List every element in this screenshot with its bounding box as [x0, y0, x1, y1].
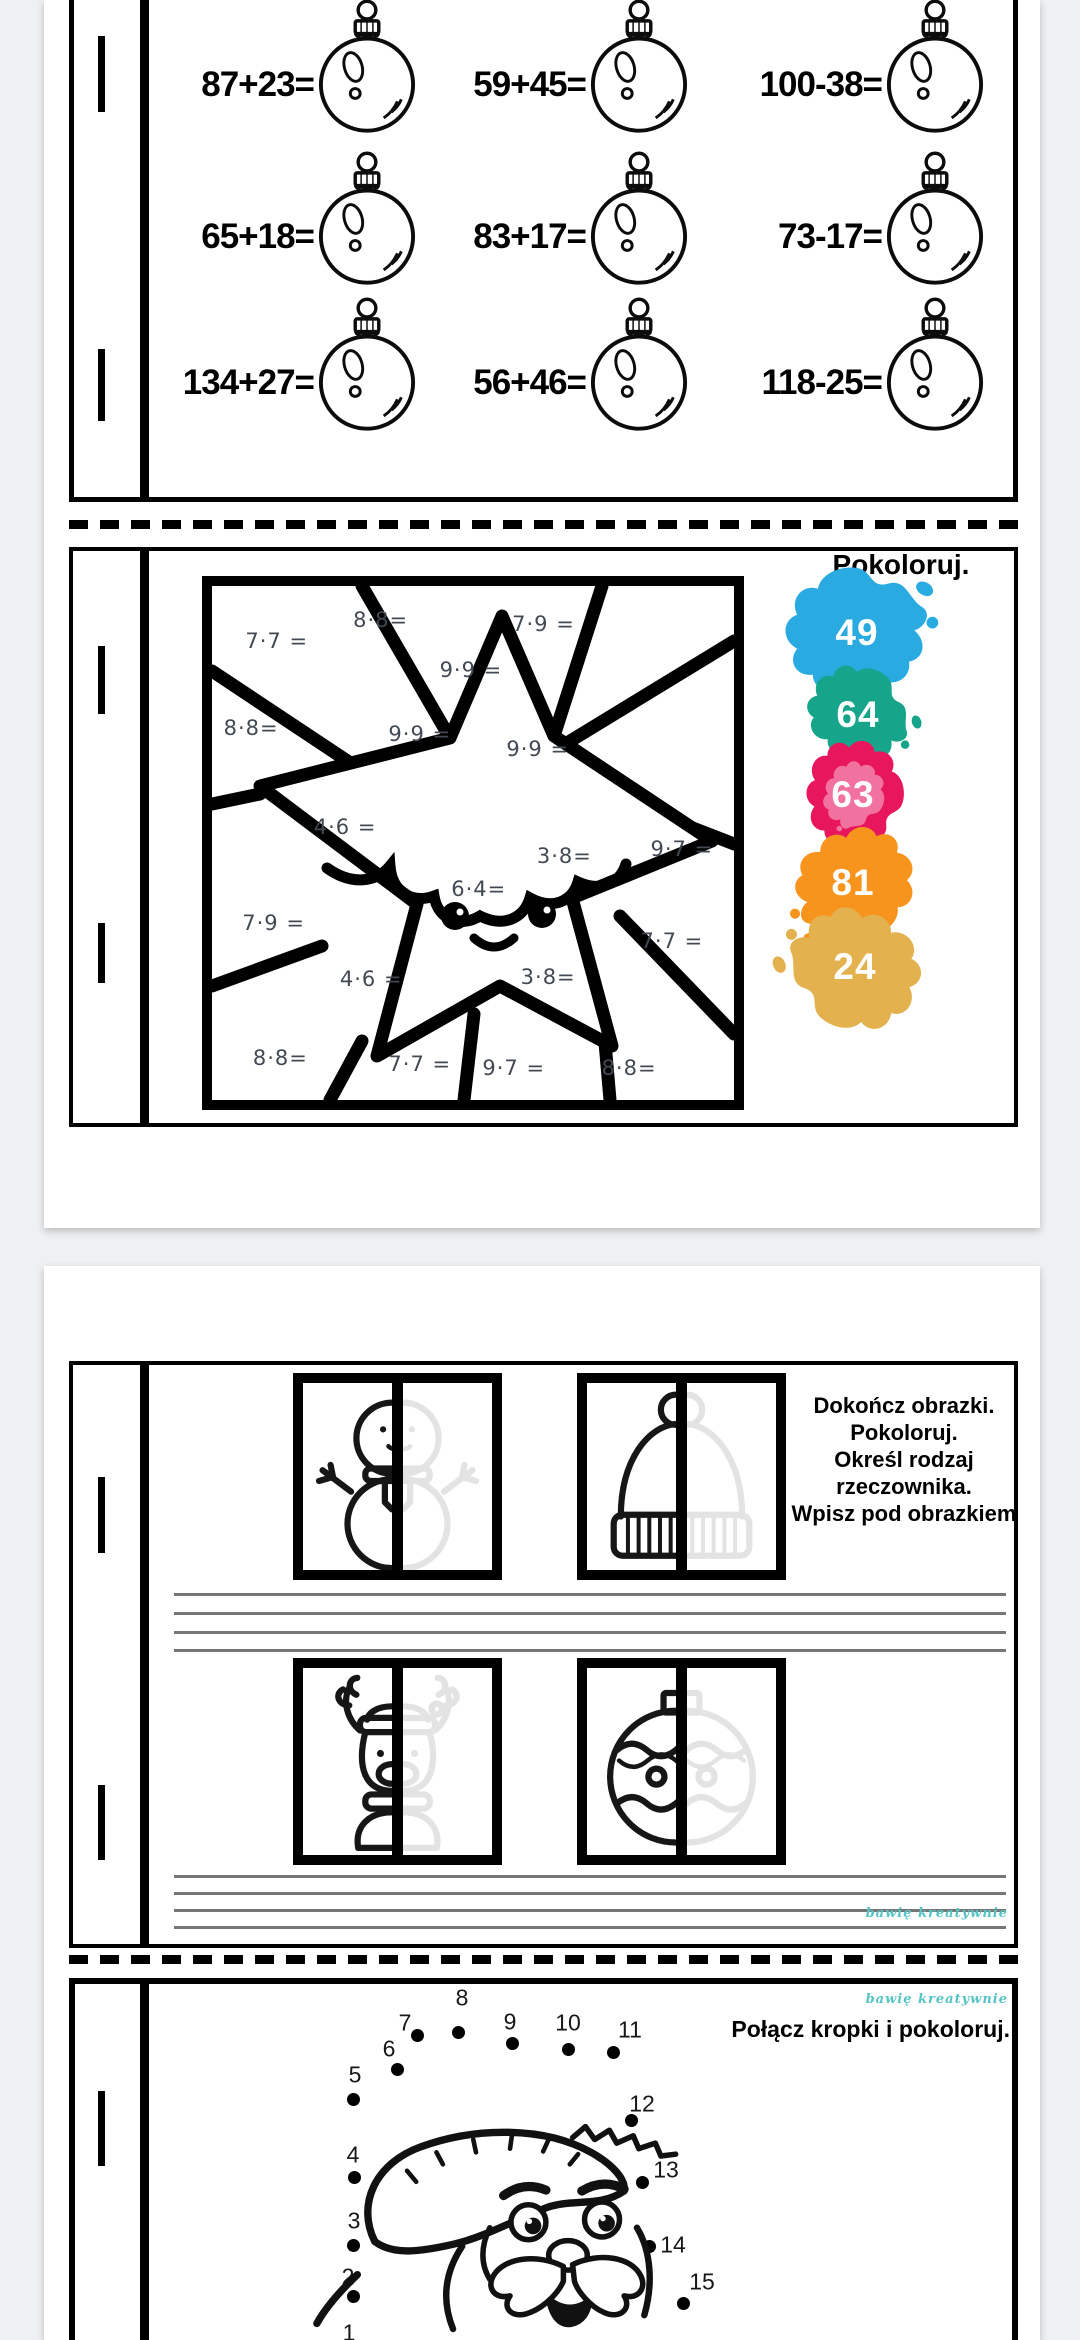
dot-number: 7 — [399, 2010, 412, 2037]
cut-mark — [98, 646, 105, 714]
ornament-ball-icon — [687, 1668, 776, 1855]
math-problem-text: 118-25= — [706, 363, 882, 403]
math-problem-text: 65+18= — [162, 217, 314, 257]
writing-line — [174, 1875, 1006, 1878]
christmas-bauble-icon — [316, 148, 418, 286]
multiplication-problem: 3·8= — [537, 844, 592, 868]
christmas-bauble-icon — [588, 148, 690, 286]
math-problem: 73-17= — [706, 148, 986, 286]
picture-half-trace — [687, 1383, 776, 1570]
math-problem-text: 56+46= — [434, 363, 586, 403]
author-watermark: bawię kreatywnie — [824, 1992, 1008, 2007]
dots-title: Połącz kropki i pokoloruj. — [704, 2016, 1010, 2043]
reindeer-icon — [303, 1668, 392, 1855]
dot-number: 6 — [383, 2036, 396, 2063]
half-picture-box — [577, 1373, 786, 1580]
dot-marker — [452, 2026, 465, 2039]
cut-mark — [98, 923, 105, 983]
cut-mark — [98, 1477, 105, 1553]
math-problem: 65+18= — [162, 148, 418, 286]
writing-line — [174, 1631, 1006, 1634]
picture-divider — [392, 1383, 403, 1570]
document-viewer: { "viewer": { "background_color": "#eef0… — [0, 0, 1080, 2340]
picture-half-drawn — [303, 1383, 392, 1570]
writing-line — [174, 1649, 1006, 1652]
document-page-2: Dokończ obrazki.Pokoloruj.Określ rodzajr… — [44, 1266, 1040, 2340]
multiplication-problem: 9·9 = — [506, 737, 569, 761]
splat-legend: 49 64 63 81 — [794, 590, 1018, 1120]
winter-hat-icon — [687, 1383, 776, 1570]
multiplication-problem: 7·9 = — [512, 612, 575, 636]
dot-number: 11 — [618, 2017, 642, 2044]
santa-claus-drawing — [279, 2099, 719, 2340]
multiplication-problem: 9·9 = — [440, 658, 503, 682]
winter-hat-icon — [587, 1383, 676, 1570]
math-problem-text: 59+45= — [434, 65, 586, 105]
multiplication-problem: 8·8= — [602, 1056, 657, 1080]
christmas-bauble-icon — [316, 294, 418, 432]
picture-half-drawn — [303, 1668, 392, 1855]
paint-splat: 24 — [780, 902, 930, 1032]
picture-divider — [392, 1668, 403, 1855]
multiplication-problem: 9·9 = — [388, 722, 451, 746]
multiplication-problem: 4·6 = — [340, 967, 403, 991]
splat-number: 24 — [780, 902, 930, 1032]
math-problem: 118-25= — [706, 294, 986, 432]
writing-line — [174, 1926, 1006, 1929]
multiplication-problem: 4·6 = — [314, 815, 377, 839]
cut-mark — [98, 2091, 105, 2166]
instruction-line: rzeczownika. — [787, 1473, 1021, 1500]
picture-half-trace — [403, 1383, 492, 1570]
writing-line — [174, 1892, 1006, 1895]
instruction-line: Wpisz pod obrazkiem — [787, 1500, 1021, 1527]
multiplication-problem: 8·8= — [353, 608, 408, 632]
dot-number: 5 — [349, 2062, 362, 2089]
christmas-bauble-icon — [588, 294, 690, 432]
instruction-line: Dokończ obrazki. — [787, 1392, 1021, 1419]
instruction-line: Pokoloruj. — [787, 1419, 1021, 1446]
reindeer-icon — [403, 1668, 492, 1855]
ornament-ball-icon — [587, 1668, 676, 1855]
instructions-block: Dokończ obrazki.Pokoloruj.Określ rodzajr… — [787, 1392, 1021, 1527]
picture-divider — [676, 1383, 687, 1570]
christmas-bauble-icon — [588, 0, 690, 134]
author-watermark: bawię kreatywnie — [804, 1906, 1008, 1921]
instruction-line: Określ rodzaj — [787, 1446, 1021, 1473]
math-problem: 56+46= — [434, 294, 690, 432]
picture-half-drawn — [587, 1383, 676, 1570]
christmas-bauble-icon — [884, 148, 986, 286]
worksheet-margin-divider — [140, 1365, 149, 1944]
picture-half-drawn — [587, 1668, 676, 1855]
math-problem: 87+23= — [162, 0, 418, 134]
dot-marker — [411, 2029, 424, 2042]
christmas-bauble-icon — [884, 294, 986, 432]
snowman-icon — [303, 1383, 392, 1570]
math-problem-text: 83+17= — [434, 217, 586, 257]
dashed-cut-line — [69, 1955, 1018, 1964]
writing-line — [174, 1612, 1006, 1615]
dot-number: 8 — [456, 1985, 469, 2012]
christmas-bauble-icon — [884, 0, 986, 134]
math-problem: 83+17= — [434, 148, 690, 286]
multiplication-problem: 7·7 = — [388, 1052, 451, 1076]
half-picture-box — [577, 1658, 786, 1865]
multiplication-problem: 7·7 = — [641, 929, 704, 953]
math-problem: 134+27= — [162, 294, 418, 432]
math-problem-text: 100-38= — [706, 65, 882, 105]
dot-number: 10 — [555, 2010, 581, 2037]
worksheet-margin-divider — [140, 551, 149, 1123]
cut-mark — [98, 349, 105, 421]
snowman-icon — [403, 1383, 492, 1570]
math-problem-text: 87+23= — [162, 65, 314, 105]
multiplication-problem: 3·8= — [521, 965, 576, 989]
dot-marker — [607, 2046, 620, 2059]
cut-mark — [98, 1785, 105, 1860]
dot-marker — [562, 2043, 575, 2056]
picture-divider — [676, 1668, 687, 1855]
dot-number: 9 — [504, 2009, 517, 2036]
christmas-bauble-icon — [316, 0, 418, 134]
multiplication-problem: 7·7 = — [245, 629, 308, 653]
multiplication-problem: 8·8= — [224, 716, 279, 740]
math-problem-text: 73-17= — [706, 217, 882, 257]
multiplication-problem: 9·7 = — [482, 1056, 545, 1080]
dot-marker — [506, 2037, 519, 2050]
math-problem: 100-38= — [706, 0, 986, 134]
worksheet-margin-divider — [140, 1984, 149, 2340]
writing-line — [174, 1593, 1006, 1596]
multiplication-problem: 7·9 = — [242, 911, 305, 935]
multiplication-problem: 6·4= — [451, 877, 506, 901]
worksheet-margin-divider — [140, 0, 149, 497]
picture-half-trace — [403, 1668, 492, 1855]
half-picture-box — [293, 1373, 502, 1580]
half-picture-box — [293, 1658, 502, 1865]
multiplication-problem: 8·8= — [253, 1046, 308, 1070]
picture-half-trace — [687, 1668, 776, 1855]
math-problem: 59+45= — [434, 0, 690, 134]
document-page-1: 87+23=59+45=100-38=65+18=83+17=73-17=134… — [44, 0, 1040, 1228]
multiplication-problem: 9·7 = — [650, 837, 713, 861]
cut-mark — [98, 36, 105, 112]
math-problem-text: 134+27= — [162, 363, 314, 403]
color-by-number-picture: 7·7 =8·8=7·9 =9·9 =9·9 =9·9 =8·8=4·6 =3·… — [202, 576, 744, 1110]
dashed-cut-line — [69, 520, 1018, 529]
dot-marker — [391, 2063, 404, 2076]
